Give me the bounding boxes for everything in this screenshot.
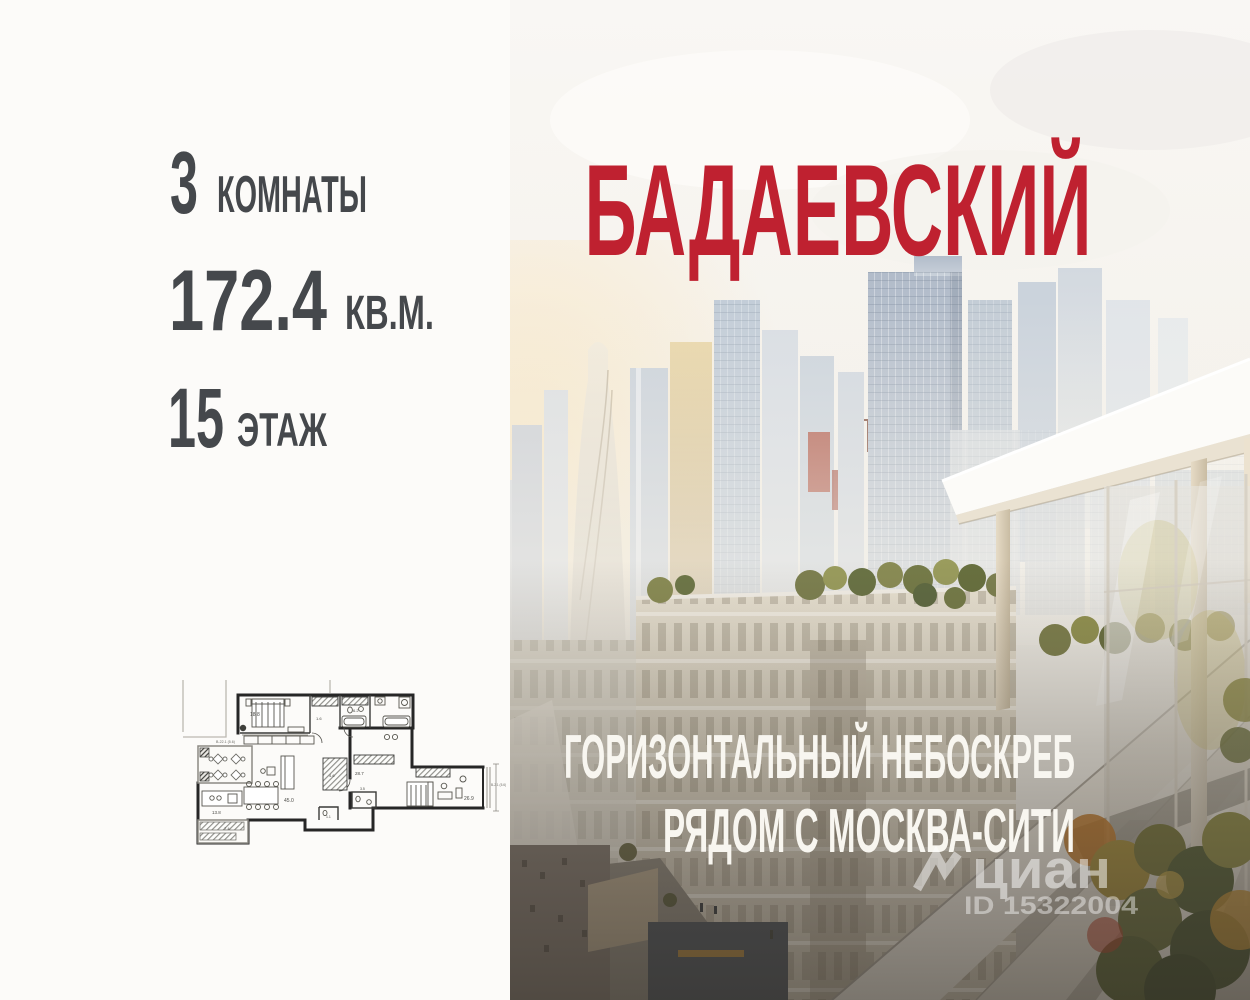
room-label: 45.0 [284,798,294,804]
tagline-line1: ГОРИЗОНТАЛЬНЫЙ НЕБОСКРЕБ [564,722,1075,792]
room-label: 18.8 [250,712,260,718]
rooms-label: КОМНАТЫ [217,166,367,224]
floor-value: 15 [168,371,224,465]
hero-photo: БАДАЕВСКИЙ ГОРИЗОНТАЛЬНЫЙ НЕБОСКРЕБ РЯДО… [510,0,1250,1000]
room-label: 1.6 [316,716,322,721]
project-title: БАДАЕВСКИЙ [585,137,1092,283]
room-label: 4.6 [329,773,335,778]
room-label: В-22.1 (5.6) [216,740,235,744]
room-label: 1.1 [326,815,331,819]
room-label: 6.2 [353,708,359,713]
floorplan-windows [242,735,490,808]
room-label: В-2.1 (5.6) [491,783,506,787]
room-label: 7.4 [224,826,230,831]
floorplan-dimensions [493,764,499,811]
area-value: 172.4 [169,253,327,349]
listing-card: 3 КОМНАТЫ 172.4 КВ.М. 15 ЭТАЖ [0,0,1250,1000]
room-label: 13.8 [212,810,221,815]
hero-photo-scene: БАДАЕВСКИЙ ГОРИЗОНТАЛЬНЫЙ НЕБОСКРЕБ РЯДО… [510,0,1250,1000]
floorplan: 18.8 1.6 6.2 4.6 28.7 45.0 13.8 1.1 3.5 … [180,680,510,860]
watermark-brand: циан [972,838,1111,900]
floor-label: ЭТАЖ [237,403,327,456]
rooms-value: 3 [170,133,198,232]
area-label: КВ.М. [345,287,434,340]
room-label: 26.9 [464,796,474,802]
room-label: 3.5 [360,787,365,791]
info-panel: 3 КОМНАТЫ 172.4 КВ.М. 15 ЭТАЖ [0,0,510,1000]
watermark-id: ID 15322004 [964,892,1138,920]
room-label: 28.7 [355,771,364,776]
apartment-stats: 3 КОМНАТЫ 172.4 КВ.М. 15 ЭТАЖ [0,0,510,660]
